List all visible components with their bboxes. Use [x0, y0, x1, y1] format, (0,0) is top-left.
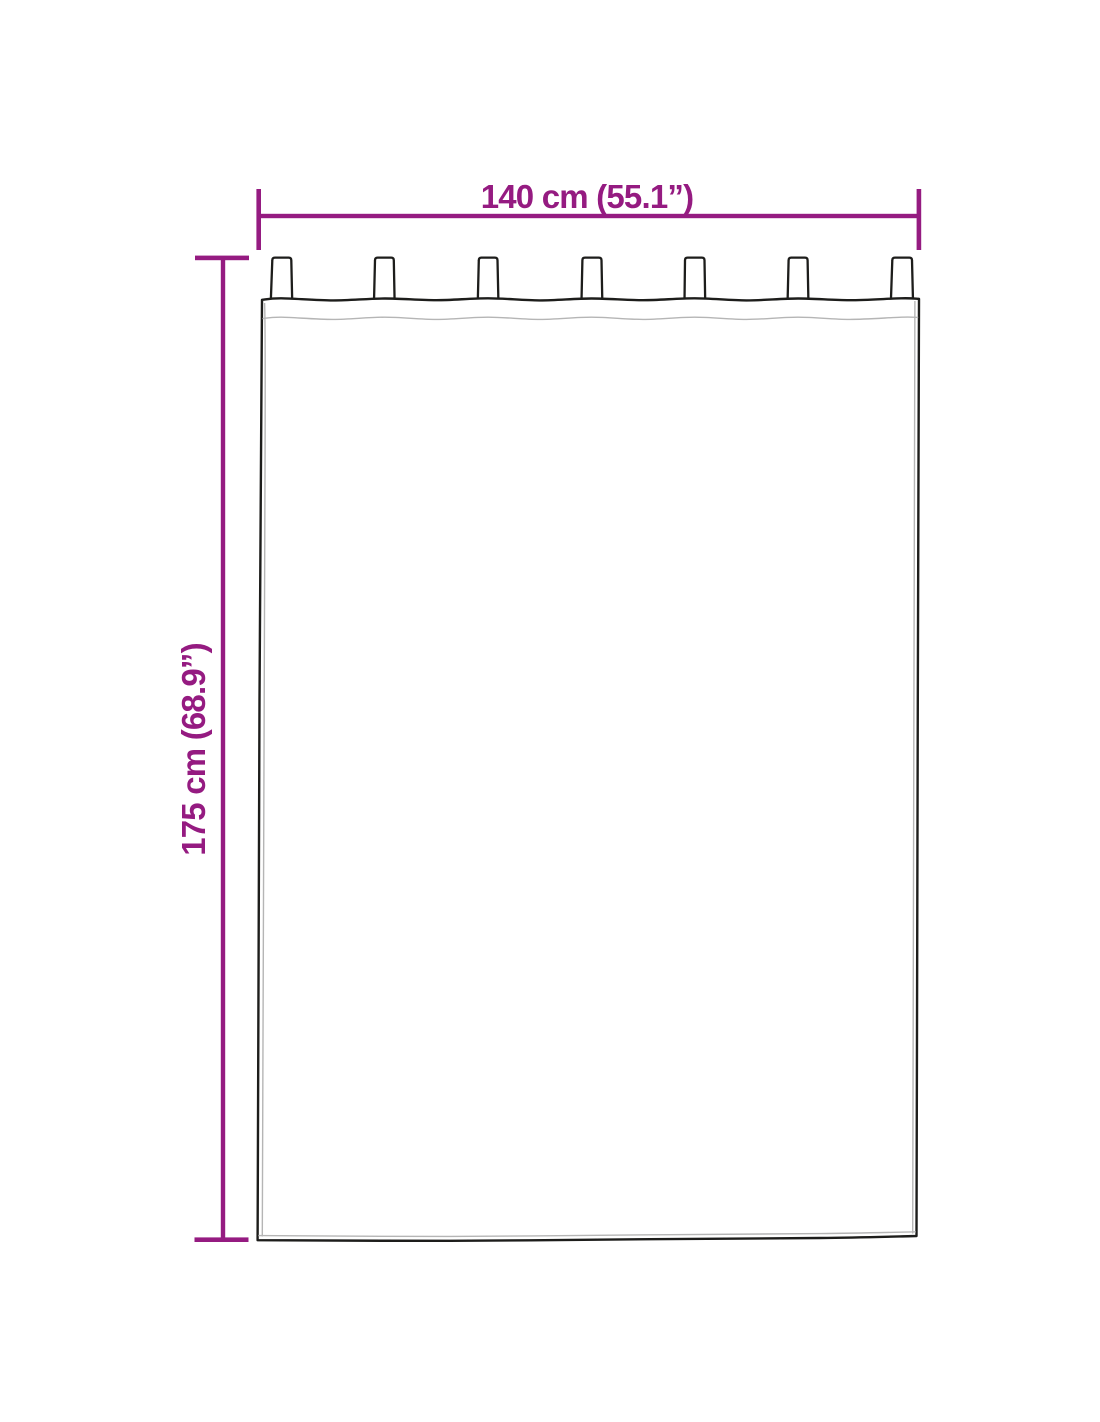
svg-text:175 cm (68.9”): 175 cm (68.9”): [175, 643, 212, 856]
svg-text:140 cm (55.1”): 140 cm (55.1”): [481, 178, 694, 215]
